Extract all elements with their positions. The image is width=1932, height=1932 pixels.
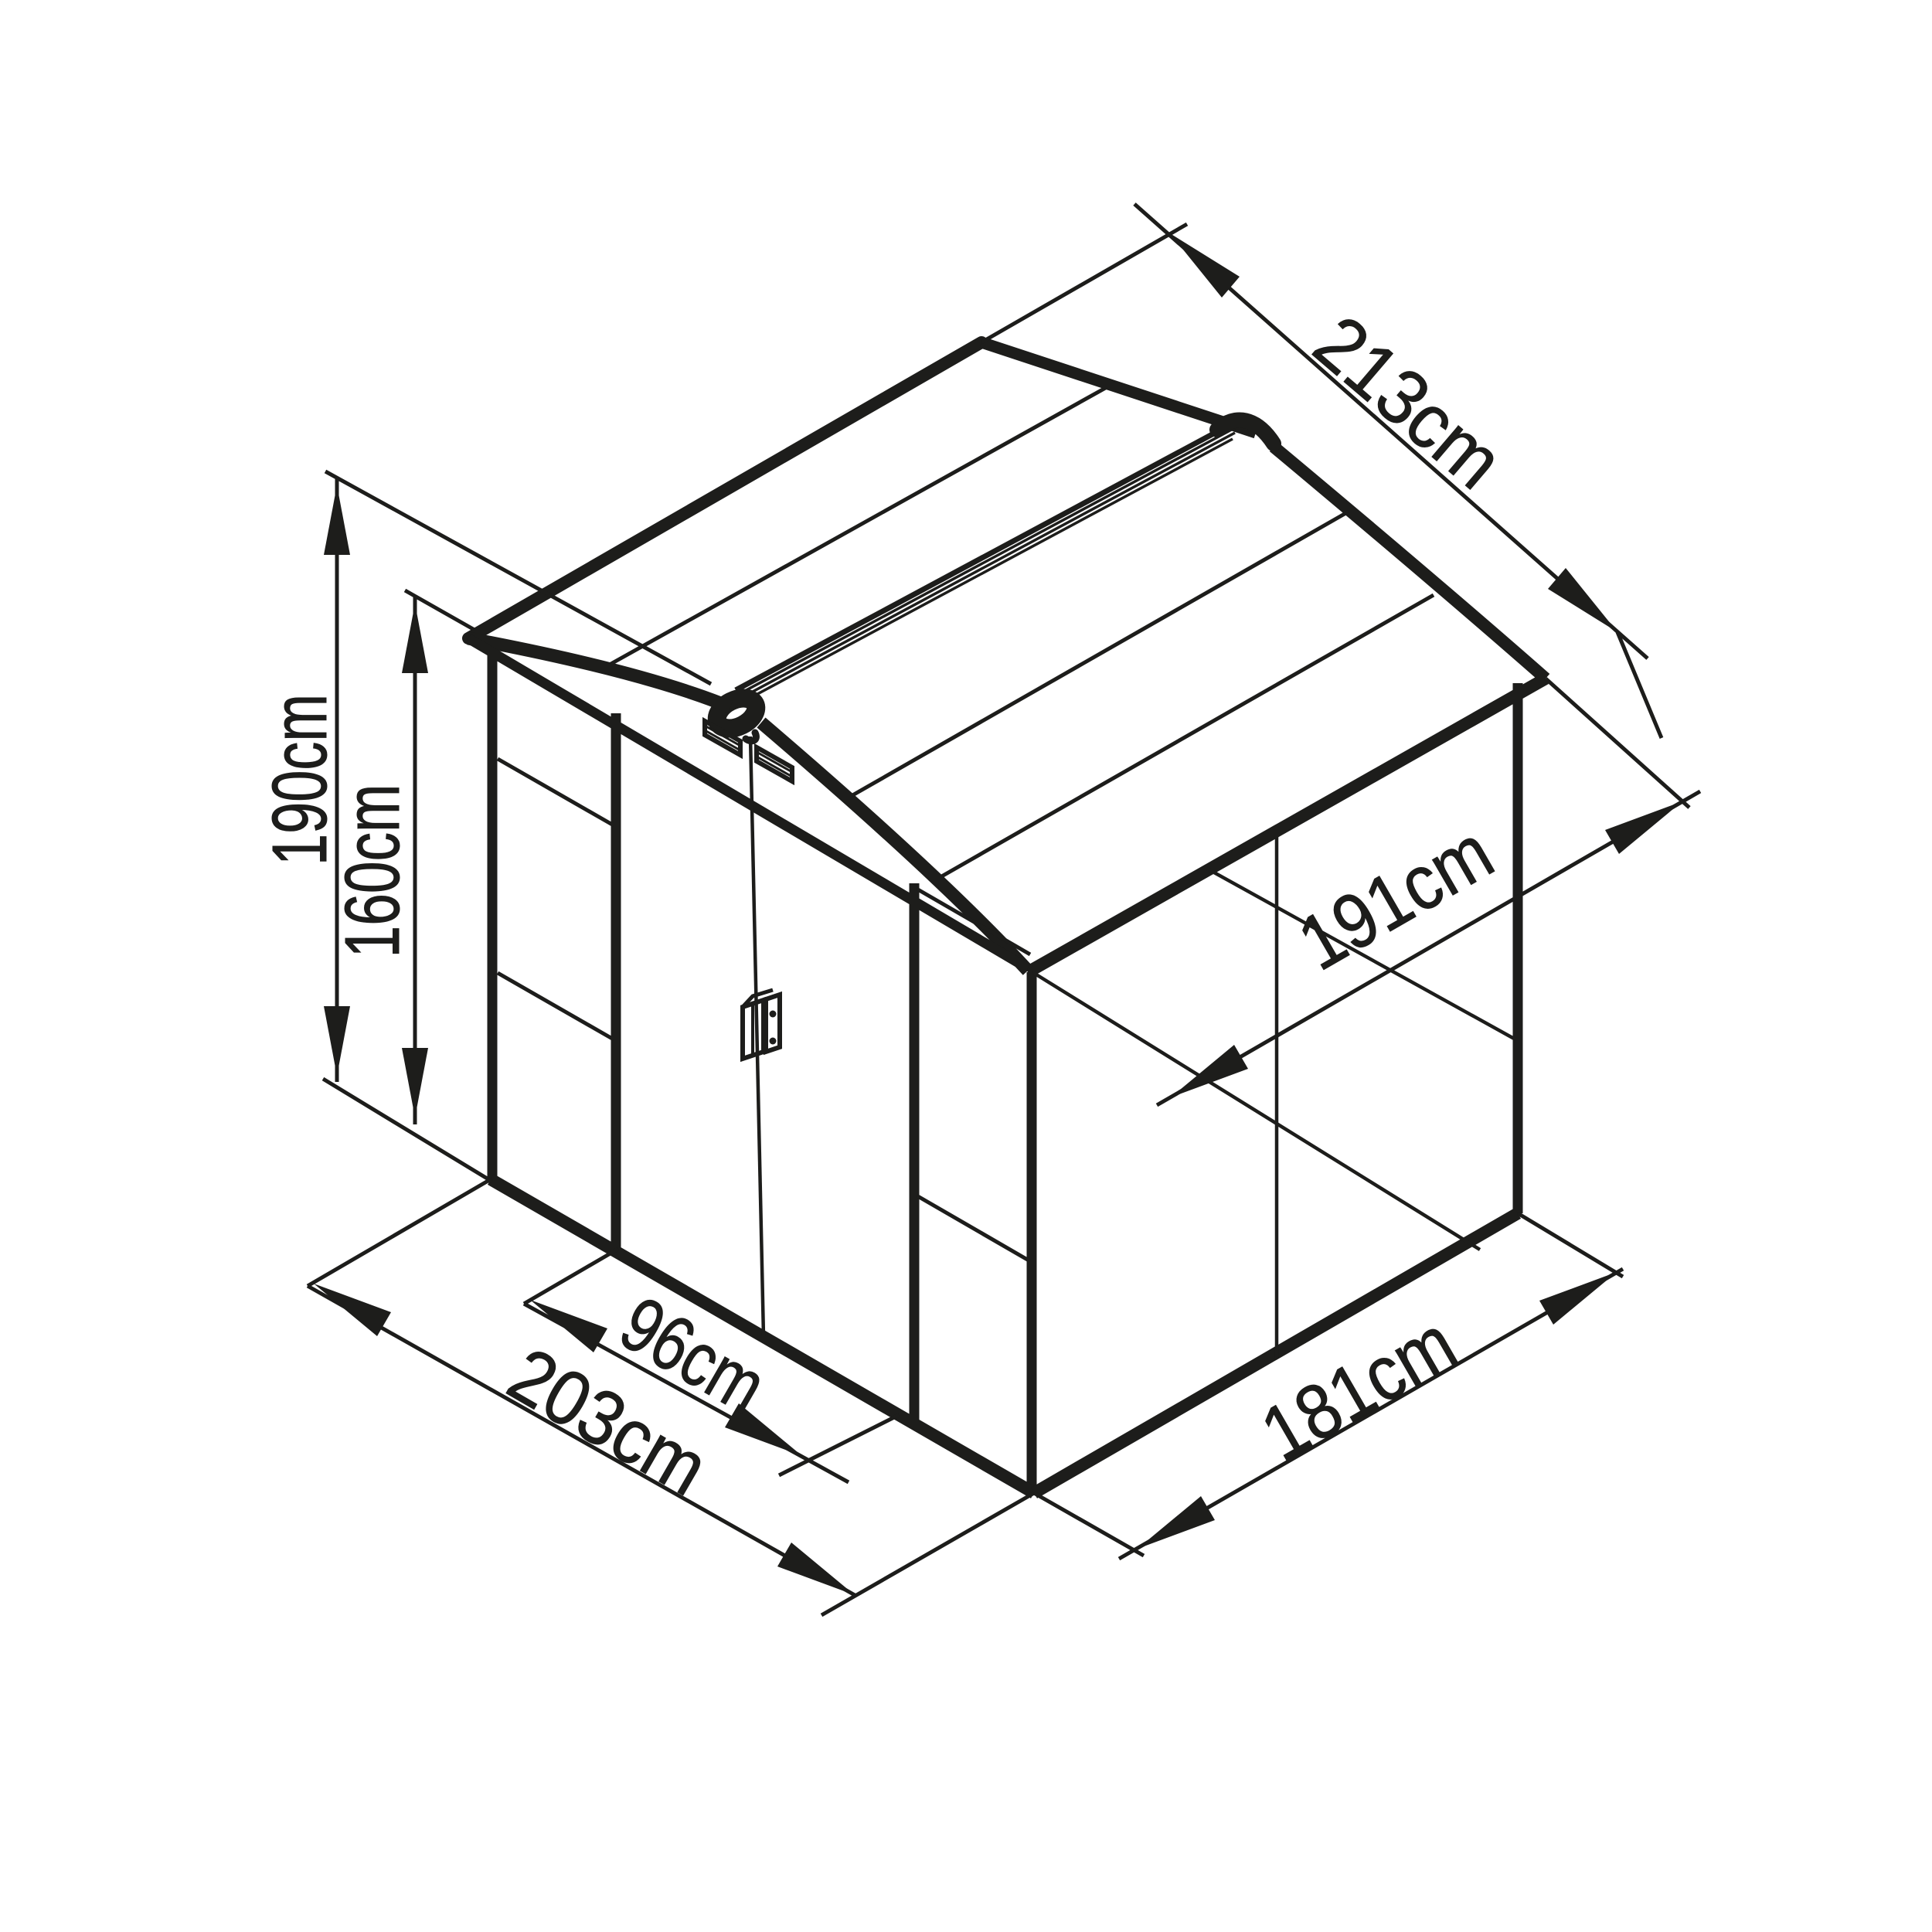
svg-text:160cm: 160cm <box>329 784 416 958</box>
